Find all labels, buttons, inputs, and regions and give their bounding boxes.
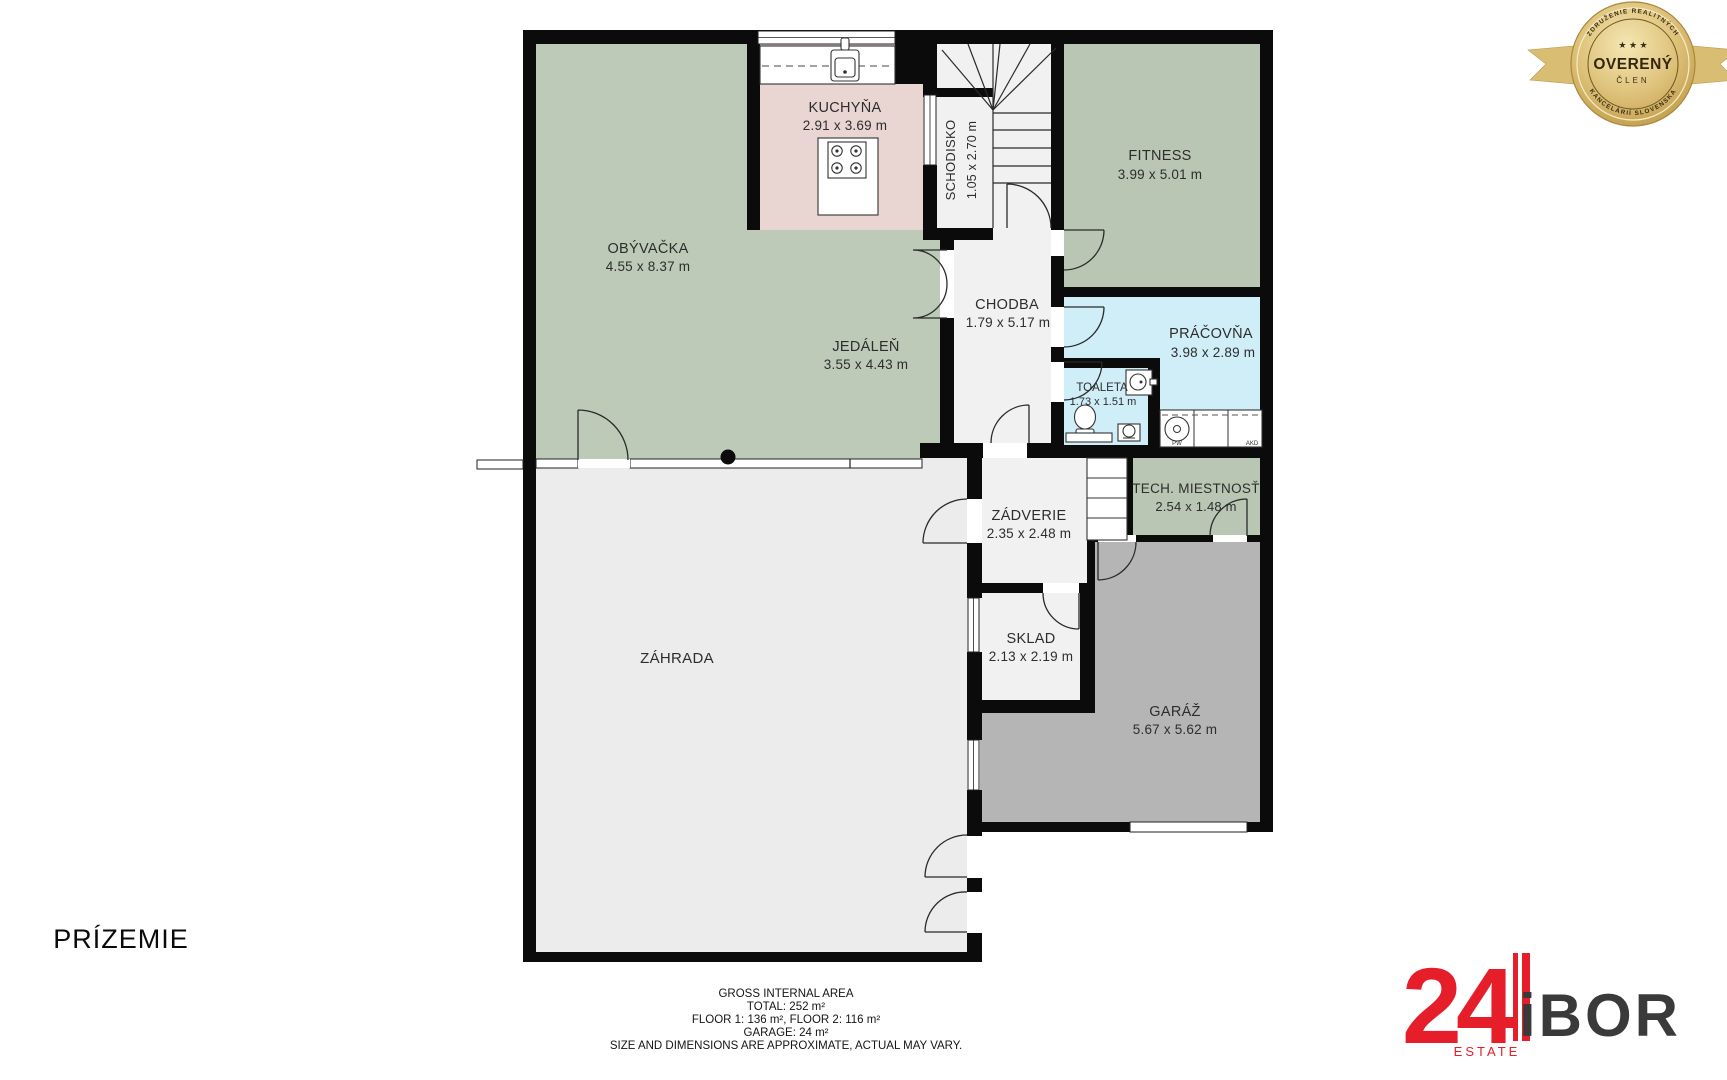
dims-jedalen: 3.55 x 4.43 m	[824, 357, 908, 372]
label-zahrada: ZÁHRADA	[640, 650, 714, 667]
footer-line-1: GROSS INTERNAL AREA	[718, 988, 853, 1000]
label-pracovna: PRÁČOVŇA	[1169, 325, 1253, 342]
label-jedalen: JEDÁLEŇ	[832, 338, 899, 355]
dims-garaz: 5.67 x 5.62 m	[1133, 722, 1217, 737]
terrace-sill	[477, 460, 523, 469]
room-zahrada	[536, 458, 967, 952]
badge-ribbon-left	[1528, 46, 1575, 84]
dims-zadverie: 2.35 x 2.48 m	[987, 526, 1071, 541]
label-toaleta: TOALETA	[1076, 382, 1128, 394]
footer-text: GROSS INTERNAL AREA TOTAL: 252 m² FLOOR …	[610, 988, 962, 1052]
badge-ribbon-right	[1691, 46, 1727, 84]
patio-glazing-left	[536, 459, 578, 468]
footer-line-4: GARAGE: 24 m²	[744, 1027, 829, 1039]
room-tech	[1133, 458, 1260, 535]
badge-subtitle: ČLEN	[1616, 76, 1649, 85]
faucet-icon	[841, 38, 849, 50]
floor-title: PRÍZEMIE	[53, 924, 189, 954]
label-kuchyna: KUCHYŇA	[809, 99, 882, 116]
logo-name: iBOR	[1519, 982, 1681, 1049]
label-tech: TECH. MIESTNOSŤ	[1132, 481, 1260, 496]
kitchen-counter	[760, 46, 895, 84]
dims-chodba: 1.79 x 5.17 m	[966, 315, 1050, 330]
dims-pracovna: 3.98 x 2.89 m	[1171, 345, 1255, 360]
verified-member-badge: ZDRUŽENIE REALITNÝCH KANCELÁRIÍ SLOVENSK…	[1528, 2, 1727, 126]
dims-sklad: 2.13 x 2.19 m	[989, 649, 1073, 664]
label-garaz: GARÁŽ	[1149, 703, 1200, 720]
dims-toaleta: 1.73 x 1.51 m	[1070, 396, 1137, 408]
wardrobe	[1087, 458, 1127, 540]
washer-label: PW	[1172, 441, 1182, 447]
brand-logo: 24 iBOR ESTATE	[1402, 945, 1681, 1066]
label-sklad: SKLAD	[1006, 631, 1055, 647]
room-fitness	[1060, 44, 1260, 287]
pillar-dot	[721, 450, 736, 465]
label-zadverie: ZÁDVERIE	[992, 507, 1067, 524]
label-schodisko: SCHODISKO	[943, 120, 958, 201]
dims-fitness: 3.99 x 5.01 m	[1118, 167, 1202, 182]
sink-tap-icon	[1150, 379, 1157, 385]
dims-tech: 2.54 x 1.48 m	[1155, 499, 1236, 514]
logo-tagline: ESTATE	[1454, 1044, 1521, 1059]
logo-bar-thin	[1513, 953, 1518, 1041]
dims-kuchyna: 2.91 x 3.69 m	[803, 118, 887, 133]
footer-line-5: SIZE AND DIMENSIONS ARE APPROXIMATE, ACT…	[610, 1040, 962, 1052]
dryer-label: AKD	[1246, 441, 1259, 447]
badge-title: OVERENÝ	[1593, 55, 1672, 73]
badge-stars-icon: ★ ★ ★	[1618, 40, 1647, 50]
garage-vehicle-door	[1130, 822, 1247, 832]
footer-line-2: TOTAL: 252 m²	[747, 1001, 825, 1013]
label-obyvacka: OBÝVAČKA	[607, 240, 688, 257]
toaleta-shelf	[1066, 433, 1112, 442]
footer-line-3: FLOOR 1: 136 m², FLOOR 2: 116 m²	[692, 1014, 880, 1026]
label-fitness: FITNESS	[1128, 148, 1191, 164]
patio-glazing-right	[630, 459, 922, 468]
floorplan-canvas: PW AKD OBÝVAČKA 4.55 x 8.37 m JEDÁLEŇ 3.…	[0, 0, 1727, 1080]
floorplan-page: PW AKD OBÝVAČKA 4.55 x 8.37 m JEDÁLEŇ 3.…	[0, 0, 1727, 1080]
label-chodba: CHODBA	[975, 297, 1039, 313]
wc-bowl-icon	[1075, 405, 1096, 429]
dims-obyvacka: 4.55 x 8.37 m	[606, 259, 690, 274]
dims-schodisko: 1.05 x 2.70 m	[965, 121, 979, 199]
